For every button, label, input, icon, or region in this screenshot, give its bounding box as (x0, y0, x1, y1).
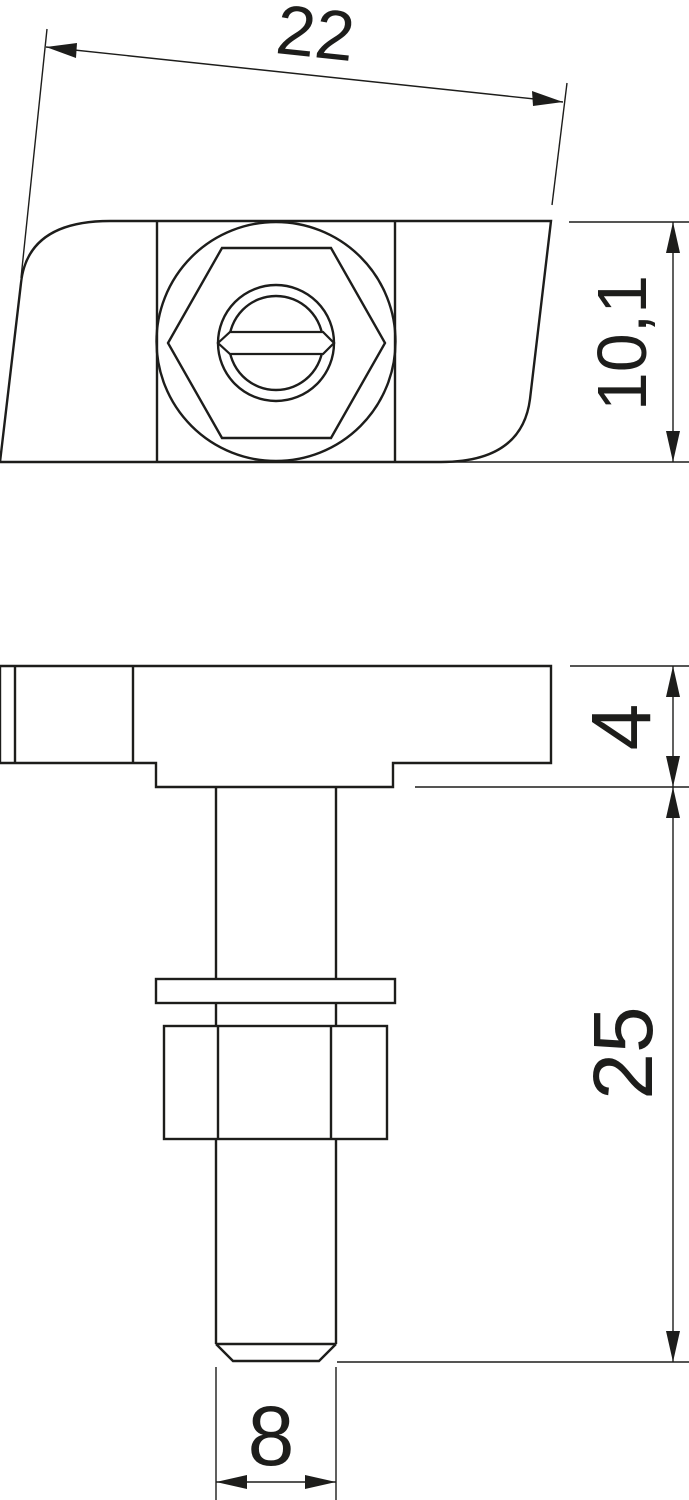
dimension-head-width: 22 (21, 0, 567, 278)
hex-nut (164, 1026, 387, 1139)
dimension-value-head-thickness: 4 (574, 704, 668, 751)
dimension-tip-diameter: 8 (216, 1367, 336, 1500)
dimension-shank-length: 25 (337, 787, 689, 1362)
arrowhead-22-right (532, 91, 563, 106)
dimension-value-shank-length: 25 (576, 1006, 670, 1099)
tip-chamfer (216, 1344, 336, 1361)
washer (156, 979, 395, 1003)
arrowhead-4-top (666, 666, 680, 697)
arrowhead-101-top (666, 222, 680, 253)
dimension-head-depth: 10,1 (569, 222, 689, 462)
arrowhead-8-right (305, 1475, 336, 1489)
screw-slot (218, 332, 334, 354)
drawing-page: 22 10,1 (0, 0, 689, 1500)
technical-drawing: 22 10,1 (0, 0, 689, 1500)
arrowhead-8-left (216, 1475, 247, 1489)
arrowhead-22-left (46, 43, 77, 58)
side-view (0, 666, 551, 1361)
arrowhead-4-bottom (666, 756, 680, 787)
arrowhead-25-top (666, 787, 680, 818)
dimension-value-head-width: 22 (273, 0, 359, 76)
flange-head-outline (0, 666, 551, 787)
dimension-value-tip-diameter: 8 (248, 1389, 295, 1483)
arrowhead-101-bottom (666, 431, 680, 462)
dimension-value-head-depth: 10,1 (583, 275, 661, 411)
arrowhead-25-bottom (666, 1331, 680, 1362)
